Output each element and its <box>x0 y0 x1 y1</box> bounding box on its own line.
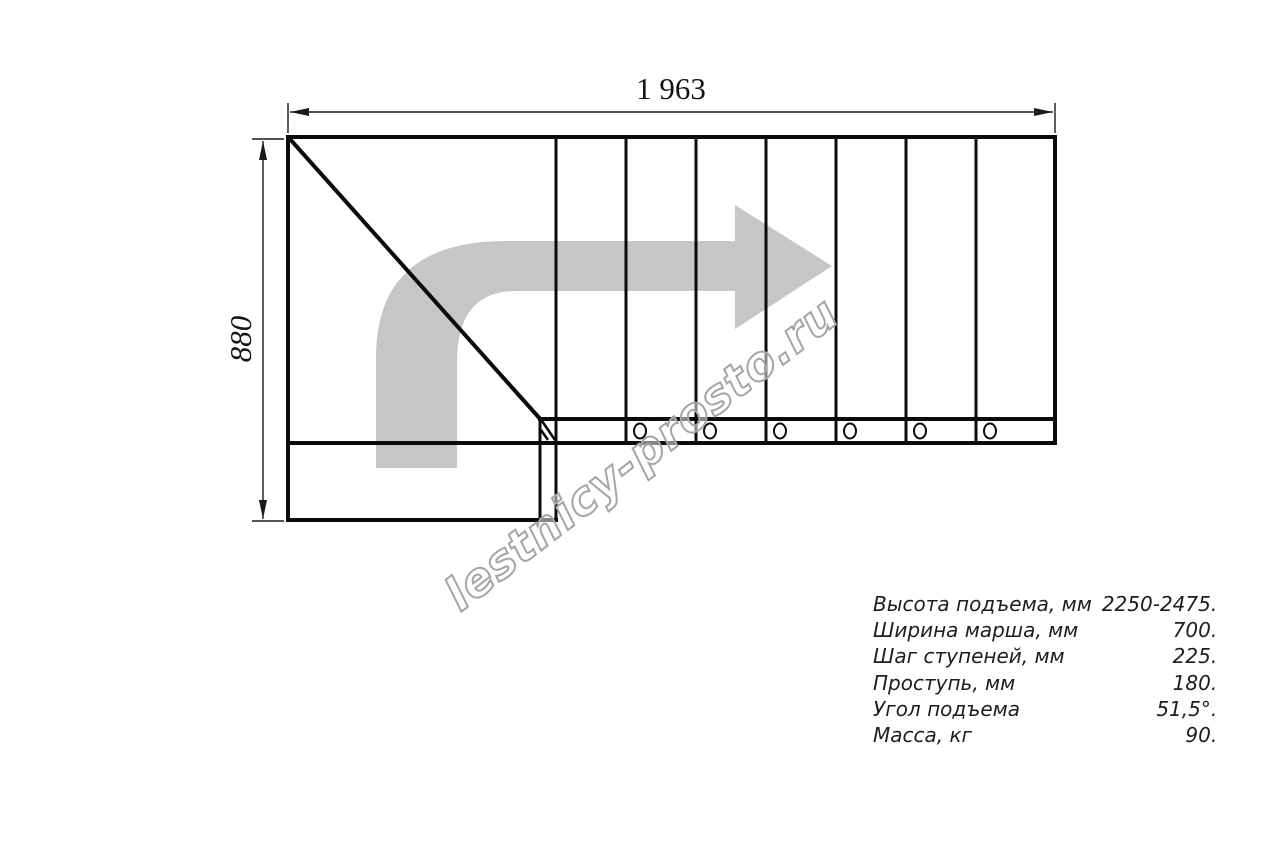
spec-label: Масса, кг <box>873 722 1092 748</box>
spec-label: Шаг ступеней, мм <box>873 643 1092 669</box>
spec-label: Ширина марша, мм <box>873 617 1092 643</box>
dimension-top-label: 1 963 <box>591 71 751 107</box>
dimension-left-label: 880 <box>223 259 259 419</box>
watermark: lestnicy-prosto.ru <box>434 286 848 621</box>
spec-value: 51,5°. <box>1102 696 1217 722</box>
stair-plan-drawing: lestnicy-prosto.ru 1 963 880 Высота подъ… <box>0 0 1280 853</box>
spec-value: 180. <box>1102 670 1217 696</box>
specs-table: Высота подъема, мм 2250-2475. Ширина мар… <box>873 591 1199 748</box>
spec-label: Угол подъема <box>873 696 1092 722</box>
corner-hatch <box>541 421 555 440</box>
spec-value: 90. <box>1102 722 1217 748</box>
spec-label: Высота подъема, мм <box>873 591 1092 617</box>
spec-label: Проступь, мм <box>873 670 1092 696</box>
dimension-top-lines <box>288 103 1055 133</box>
spec-value: 2250-2475. <box>1102 591 1217 617</box>
spec-value: 700. <box>1102 617 1217 643</box>
spec-value: 225. <box>1102 643 1217 669</box>
